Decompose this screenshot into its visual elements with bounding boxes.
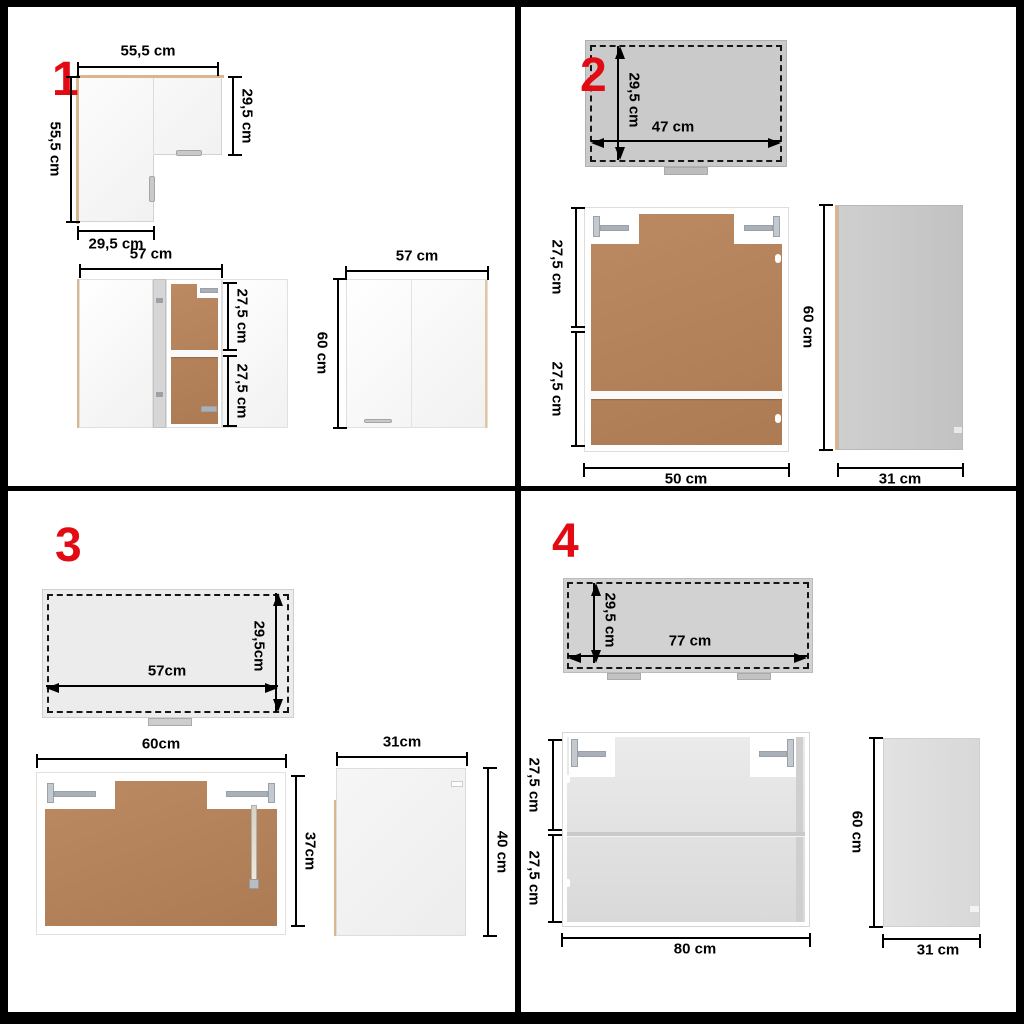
glass-door-edge: [796, 737, 803, 922]
mounting-tab: [664, 167, 708, 175]
dim-line-closed-height: [337, 279, 339, 428]
dim-line-corner-top-width: [78, 66, 218, 68]
hinge-icon: [200, 288, 218, 293]
divider-horizontal: [0, 486, 1024, 491]
dim-label: 60cm: [142, 736, 180, 753]
dim-line-upper-shelf: [575, 208, 577, 327]
hinge-mark: [156, 298, 163, 303]
door-catch: [565, 775, 570, 783]
gas-strut-end: [249, 879, 259, 889]
door-handle: [149, 176, 155, 202]
cabinet-back-panel: [591, 214, 782, 445]
dim-line-side-height: [487, 768, 489, 936]
open-door-right: [222, 279, 288, 428]
dim-label: 50 cm: [665, 471, 708, 488]
divider-vertical: [515, 0, 521, 1024]
dim-line-lower-shelf: [227, 356, 229, 426]
dim-label: 55,5 cm: [120, 43, 175, 60]
dim-label: 29,5cm: [251, 621, 268, 672]
cabinet-side-view: [883, 738, 980, 927]
dim-line-side-height: [823, 205, 825, 450]
dim-line-corner-bottom-width: [78, 230, 154, 232]
frame-left: [0, 0, 8, 1024]
dim-label: 27,5 cm: [234, 363, 251, 418]
door-catch: [970, 906, 979, 912]
open-cabinet-front: [36, 772, 286, 935]
door-catch: [565, 879, 570, 887]
dim-line-front-width: [37, 758, 286, 760]
cabinet-shelf: [171, 350, 218, 357]
dim-label: 31 cm: [917, 942, 960, 959]
diagram-canvas: 1 55,5 cm 29,5 cm 55,5 cm 29,5 cm 57 cm: [0, 0, 1024, 1024]
door-catch: [775, 254, 781, 263]
dim-label: 57 cm: [396, 248, 439, 265]
hinge-mark: [156, 392, 163, 397]
hinge-notch: [569, 737, 615, 777]
dim-label: 47 cm: [652, 119, 695, 136]
hinge-notch: [45, 781, 115, 809]
hinge-notch: [734, 214, 782, 244]
wood-edge: [76, 75, 224, 78]
mounting-tab: [737, 673, 771, 680]
open-cabinet-interior: [166, 279, 222, 428]
mounting-tab: [607, 673, 641, 680]
dim-label: 60 cm: [800, 306, 817, 349]
door-catch: [954, 427, 962, 433]
dim-label: 29,5 cm: [626, 72, 643, 127]
dim-label: 37cm: [302, 832, 319, 870]
dim-label: 60 cm: [849, 811, 866, 854]
wood-edge: [485, 280, 487, 428]
open-cabinet-front: [584, 207, 789, 452]
dim-line-side-depth: [883, 938, 980, 940]
panel-3-number: 3: [55, 522, 82, 570]
dim-label: 31 cm: [879, 471, 922, 488]
dim-label: 55,5 cm: [47, 121, 64, 176]
glass-cabinet-front: [562, 732, 810, 927]
door-catch: [451, 781, 463, 787]
dim-label: 27,5 cm: [549, 361, 566, 416]
closed-cabinet-front: [346, 279, 488, 428]
cabinet-shelf: [591, 391, 782, 399]
dim-line-front-width: [562, 937, 810, 939]
cabinet-outline: [78, 221, 154, 222]
hinge-notch: [591, 214, 639, 244]
dim-label: 27,5 cm: [526, 757, 543, 812]
dim-label: 57cm: [148, 663, 186, 680]
panel-4-number: 4: [552, 518, 579, 566]
dim-line-open-width: [80, 268, 222, 270]
dim-line-lower-shelf: [575, 332, 577, 446]
dim-line-topview-width: [568, 655, 807, 657]
cabinet-side-view: [838, 205, 963, 450]
dim-line-front-height: [295, 776, 297, 926]
dim-label: 77 cm: [669, 633, 712, 650]
panel-1-number: 1: [52, 56, 79, 104]
dim-label: 27,5 cm: [526, 850, 543, 905]
dim-line-corner-left-height: [70, 77, 72, 222]
cabinet-side-view: [336, 768, 466, 936]
gas-strut: [251, 805, 257, 883]
mounting-tab: [148, 718, 192, 726]
dim-line-upper-shelf: [227, 283, 229, 350]
dim-line-front-width: [584, 467, 789, 469]
dim-label: 27,5 cm: [234, 288, 251, 343]
cabinet-shelf: [567, 832, 805, 836]
dim-label: 27,5 cm: [549, 239, 566, 294]
dim-line-lower-shelf: [552, 835, 554, 922]
hinge-notch: [207, 781, 277, 809]
dim-line-side-depth: [838, 467, 963, 469]
frame-top: [0, 0, 1024, 7]
dim-label: 29,5 cm: [602, 592, 619, 647]
dim-label: 60 cm: [314, 332, 331, 375]
hinge-notch: [750, 737, 796, 777]
door-catch: [775, 414, 781, 423]
dim-label: 57 cm: [130, 246, 173, 263]
dim-line-closed-width: [346, 270, 488, 272]
dim-label: 29,5 cm: [239, 88, 256, 143]
panel-2-number: 2: [580, 52, 607, 100]
door-handle: [364, 419, 392, 423]
dim-line-topview-width: [46, 685, 278, 687]
dim-label: 31cm: [383, 734, 421, 751]
dim-line-side-height: [873, 738, 875, 927]
door-seam: [411, 280, 412, 428]
dim-line-corner-right-depth: [232, 77, 234, 155]
frame-right: [1016, 0, 1024, 1024]
door-seam: [153, 78, 154, 154]
frame-bottom: [0, 1012, 1024, 1024]
dim-line-topview-width: [591, 140, 781, 142]
dim-line-side-depth: [337, 756, 467, 758]
cabinet-side-strip: [153, 279, 166, 428]
open-door-left: [79, 279, 153, 428]
dim-line-topview-depth: [275, 593, 277, 712]
hinge-icon: [201, 406, 217, 412]
dim-line-upper-shelf: [552, 740, 554, 830]
dim-line-topview-depth: [593, 583, 595, 663]
dim-line-topview-depth: [617, 46, 619, 160]
door-handle: [176, 150, 202, 156]
dim-label: 40 cm: [494, 831, 511, 874]
dim-label: 80 cm: [674, 941, 717, 958]
cabinet-outline: [221, 77, 222, 155]
